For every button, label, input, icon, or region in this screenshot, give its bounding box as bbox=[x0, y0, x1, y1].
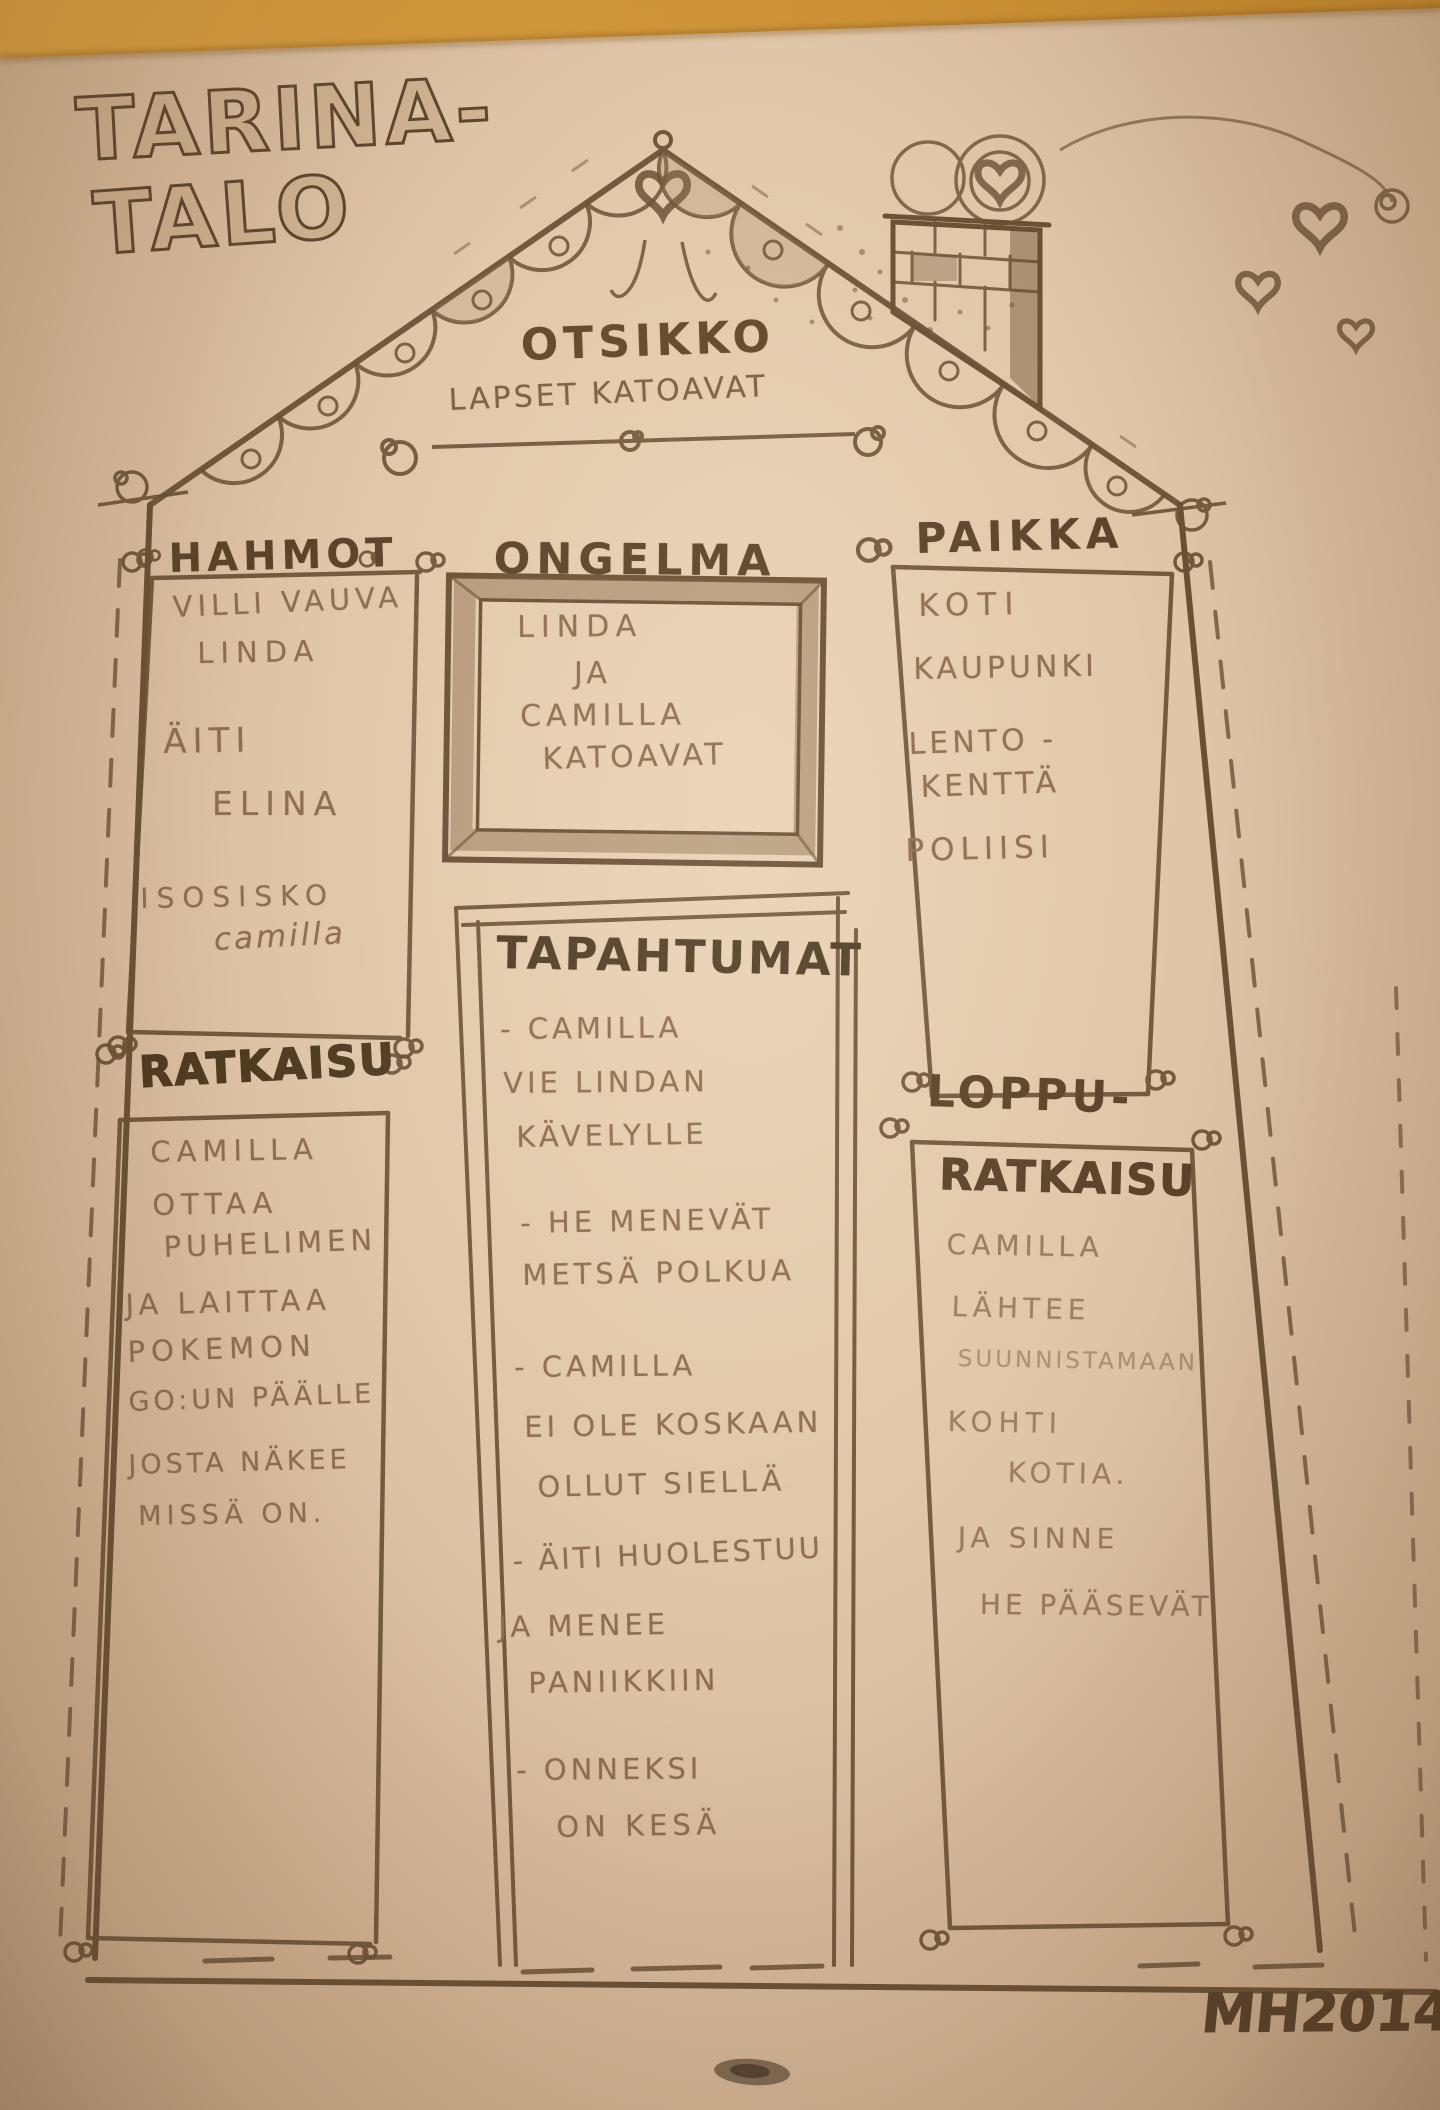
ongelma-line: JA bbox=[574, 656, 611, 691]
chimney-icon bbox=[885, 216, 1049, 409]
paikka-item: KENTTÄ bbox=[920, 765, 1061, 805]
paikka-box bbox=[858, 539, 1202, 1096]
ongelma-line: CAMILLA bbox=[520, 698, 686, 734]
tapahtumat-line: - CAMILLA bbox=[514, 1348, 696, 1384]
paikka-item: KOTI bbox=[918, 586, 1022, 624]
tapahtumat-line: JA MENEE bbox=[498, 1607, 669, 1644]
photo: TARINA- TALO bbox=[0, 0, 1440, 2110]
loppu-line: LÄHTEE bbox=[951, 1290, 1091, 1327]
smudge bbox=[713, 2056, 791, 2087]
ongelma-line: KATOAVAT bbox=[542, 737, 727, 777]
title-beam bbox=[382, 427, 884, 474]
ratkaisu-line: JOSTA NÄKEE bbox=[128, 1444, 351, 1481]
tapahtumat-line: ON KESÄ bbox=[556, 1807, 721, 1844]
ratkaisu-line: CAMILLA bbox=[150, 1132, 319, 1169]
tapahtumat-line: PANIIKKIIN bbox=[528, 1663, 720, 1700]
section-heading-hahmot: HAHMOT bbox=[168, 530, 398, 582]
worksheet-title: TARINA- TALO bbox=[74, 59, 498, 275]
ratkaisu-line: MISSÄ ON. bbox=[138, 1498, 327, 1532]
section-heading-loppu-2: RATKAISU bbox=[939, 1150, 1197, 1207]
ratkaisu-line: OTTAA bbox=[152, 1186, 279, 1222]
paikka-item: POLIISI bbox=[905, 829, 1055, 869]
paikka-item: LENTO - bbox=[908, 722, 1058, 762]
ratkaisu-line: POKEMON bbox=[127, 1328, 317, 1369]
tapahtumat-line: KÄVELYLLE bbox=[516, 1117, 708, 1154]
ongelma-line: LINDA bbox=[517, 609, 643, 645]
loppu-line: KOTIA. bbox=[1007, 1456, 1129, 1491]
tapahtumat-line: EI OLE KOSKAAN bbox=[524, 1405, 823, 1444]
section-heading-paikka: PAIKKA bbox=[915, 509, 1125, 563]
loppu-line: SUUNNISTAMAAN bbox=[958, 1346, 1199, 1376]
tapahtumat-line: OLLUT SIELLÄ bbox=[537, 1464, 786, 1504]
title-line2: TALO bbox=[90, 157, 356, 275]
loppu-line: JA SINNE bbox=[958, 1521, 1120, 1555]
section-heading-loppu-1: LOPPU- bbox=[926, 1066, 1134, 1124]
tapahtumat-line: - ONNEKSI bbox=[516, 1751, 702, 1787]
tapahtumat-line: - HE MENEVÄT bbox=[520, 1202, 774, 1240]
loppu-line: KOHTI bbox=[947, 1405, 1063, 1440]
hook-icon bbox=[682, 242, 716, 300]
hahmot-item: ISOSISKO bbox=[140, 879, 335, 915]
tapahtumat-line: VIE LINDAN bbox=[503, 1064, 709, 1100]
tapahtumat-line: - CAMILLA bbox=[500, 1010, 682, 1046]
signature: MH2014 bbox=[1199, 1980, 1440, 2045]
loppu-line: CAMILLA bbox=[946, 1228, 1104, 1264]
section-heading-tapahtumat: TAPAHTUMAT bbox=[496, 926, 864, 987]
hahmot-item: ÄITI bbox=[163, 720, 252, 762]
roof-label: OTSIKKO bbox=[520, 311, 776, 371]
loppu-line: HE PÄÄSEVÄT bbox=[980, 1588, 1213, 1623]
hahmot-item: camilla bbox=[213, 915, 347, 958]
section-heading-ongelma: ONGELMA bbox=[494, 534, 777, 586]
tapahtumat-line: METSÄ POLKUA bbox=[522, 1253, 795, 1292]
smoke-hearts-icon bbox=[892, 117, 1408, 349]
hahmot-item: LINDA bbox=[197, 634, 321, 670]
hahmot-item: ELINA bbox=[212, 784, 343, 823]
ratkaisu-line: JA LAITTAA bbox=[125, 1283, 331, 1322]
hook-icon bbox=[611, 240, 645, 297]
paikka-item: KAUPUNKI bbox=[913, 649, 1098, 687]
